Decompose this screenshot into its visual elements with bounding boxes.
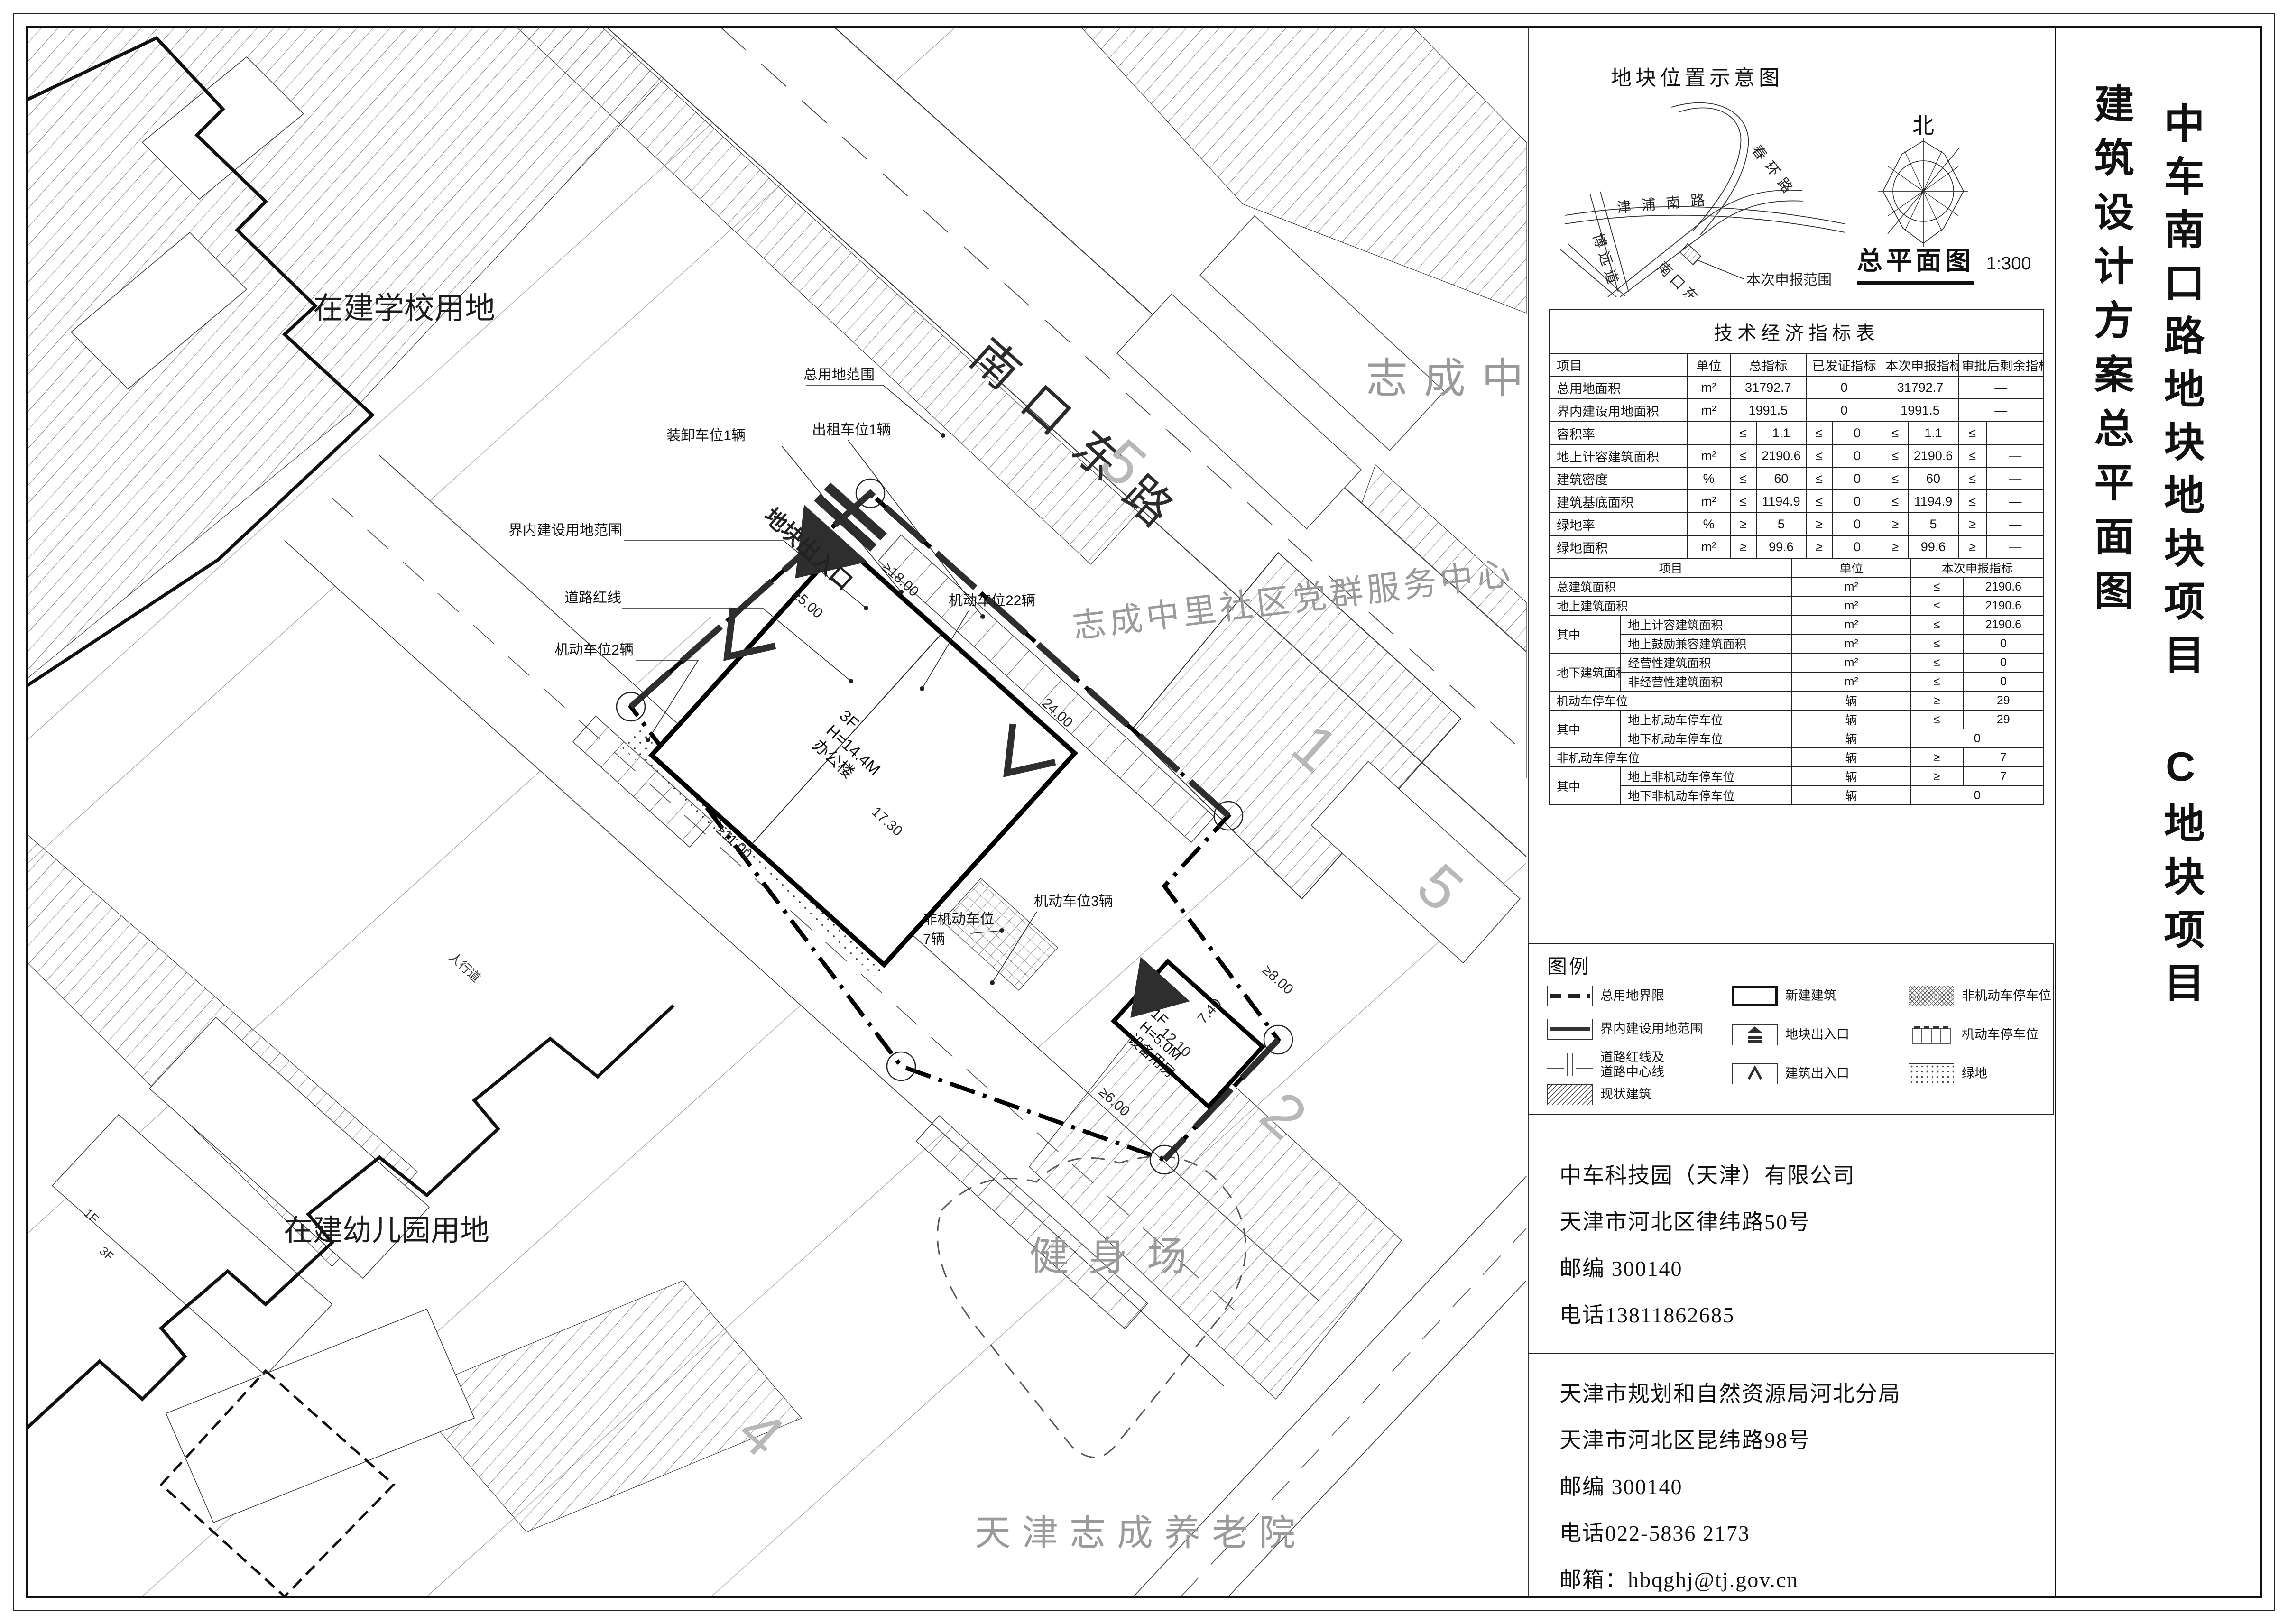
inner-scope-icon <box>1547 1019 1593 1040</box>
table-cell: 非机动车停车位 <box>1550 748 1792 767</box>
sketch-scope-label: 本次申报范围 <box>1746 272 1832 288</box>
kindergarten-area-label: 在建幼儿园用地 <box>284 1214 489 1247</box>
legend-item: 总用地界限 <box>1547 986 1664 1006</box>
authority-email: 邮箱：hbqghj@tj.gov.cn <box>1559 1557 2054 1603</box>
table-cell: 1194.9 <box>1756 490 1806 513</box>
non-motor-label-2: 7辆 <box>923 932 945 947</box>
table-cell: 2190.6 <box>1908 444 1958 467</box>
table-cell: 项目 <box>1550 558 1792 577</box>
indicator-table: 技术经济指标表 项目单位总指标已发证指标本次申报指标审批后剩余指标总用地面积m²… <box>1549 309 2044 805</box>
table-cell: 0 <box>1832 467 1882 490</box>
table-cell: ≥ <box>1882 513 1908 535</box>
table-cell: 地上非机动车停车位 <box>1621 767 1792 786</box>
table-cell: 经营性建筑面积 <box>1621 653 1792 672</box>
table-cell: ≤ <box>1806 467 1832 490</box>
legend-item: 绿地 <box>1909 1063 1987 1084</box>
table-cell: 0 <box>1806 399 1882 422</box>
table-cell: 1.1 <box>1908 422 1958 444</box>
table-cell: 7 <box>1963 748 2044 767</box>
table-cell: 1194.9 <box>1908 490 1958 513</box>
table-cell: 容积率 <box>1550 422 1688 444</box>
table-cell: — <box>1688 422 1730 444</box>
table-cell: 99.6 <box>1908 535 1958 558</box>
legend-item-label: 现状建筑 <box>1600 1087 1651 1102</box>
table-cell: m² <box>1792 634 1910 653</box>
table-cell: 地下机动车停车位 <box>1621 729 1792 748</box>
table-cell: 2190.6 <box>1963 577 2044 596</box>
table-cell: 绿地率 <box>1550 513 1688 535</box>
table-cell: 0 <box>1832 490 1882 513</box>
table-cell: 其中 <box>1550 710 1621 748</box>
table-cell: 单位 <box>1792 558 1910 577</box>
sketch-road-label: 博远道 <box>1589 231 1622 290</box>
non-motor-label-1: 非机动车位 <box>923 912 994 927</box>
table-cell: 总指标 <box>1730 353 1806 376</box>
table-cell: ≤ <box>1806 422 1832 444</box>
table-cell: ≤ <box>1806 444 1832 467</box>
table-cell: 建筑密度 <box>1550 467 1688 490</box>
table-cell: 0 <box>1806 376 1882 399</box>
table-cell: 2190.6 <box>1963 596 2044 615</box>
table-cell: 单位 <box>1688 353 1730 376</box>
table-cell: ≤ <box>1882 490 1908 513</box>
table-cell: 本次申报指标 <box>1882 353 1958 376</box>
table-cell: 辆 <box>1792 767 1910 786</box>
legend-title: 图例 <box>1547 950 1591 979</box>
table-cell: — <box>1987 422 2044 444</box>
table-cell: — <box>1958 376 2044 399</box>
table-cell: ≤ <box>1882 467 1908 490</box>
loading-1-label: 装卸车位1辆 <box>666 428 746 443</box>
table-cell: ≤ <box>1730 490 1756 513</box>
sketch-road-label: 春环路 <box>1748 142 1799 201</box>
table-cell: m² <box>1792 653 1910 672</box>
sidewalk-label: 人行道 <box>446 950 483 985</box>
table-cell: m² <box>1688 399 1730 422</box>
legend-item-label: 绿地 <box>1962 1066 1987 1081</box>
table-cell: 辆 <box>1792 748 1910 767</box>
table-cell: ≤ <box>1882 422 1908 444</box>
table-cell: ≥ <box>1882 535 1908 558</box>
legend-item: 现状建筑 <box>1547 1084 1651 1105</box>
table-cell: — <box>1987 490 2044 513</box>
table-cell: m² <box>1688 535 1730 558</box>
table-cell: 本次申报指标 <box>1910 558 2044 577</box>
table-cell: 31792.7 <box>1730 376 1806 399</box>
green-space-icon <box>1909 1063 1954 1084</box>
table-cell: 总用地面积 <box>1550 376 1688 399</box>
table-cell: 辆 <box>1792 710 1910 729</box>
table-cell: ≤ <box>1730 444 1756 467</box>
table-cell: 31792.7 <box>1882 376 1958 399</box>
floor-tag: 3F <box>97 1244 117 1264</box>
table-cell: 地下建筑面积 <box>1550 653 1621 691</box>
table-cell: ≤ <box>1910 615 1963 634</box>
table-cell: — <box>1987 513 2044 535</box>
table-cell: ≥ <box>1910 691 1963 710</box>
legend-item-label: 机动车停车位 <box>1962 1027 2039 1042</box>
table-cell: ≤ <box>1958 467 1987 490</box>
table-cell: ≥ <box>1806 513 1832 535</box>
table-cell: 2190.6 <box>1963 615 2044 634</box>
table-cell: ≥ <box>1958 513 1987 535</box>
total-site-scope-label: 总用地范围 <box>803 367 875 383</box>
table-cell: 99.6 <box>1756 535 1806 558</box>
table-cell: 0 <box>1832 444 1882 467</box>
legend: 图例 总用地界限 界内建设用地范围 道路红线及道路中心线 现状建筑 新建建筑 <box>1528 943 2054 1115</box>
table-cell: 地上机动车停车位 <box>1621 710 1792 729</box>
plan-caption: 总平面图 1:300 <box>1857 240 2031 285</box>
nursing-home-label: 天津志成养老院 <box>975 1513 1307 1553</box>
table-cell: 7 <box>1963 767 2044 786</box>
table-cell: 0 <box>1963 653 2044 672</box>
fitness-label: 健身场 <box>1029 1234 1206 1279</box>
non-motor-parking-icon <box>1909 986 1954 1006</box>
table-cell: ≤ <box>1910 672 1963 691</box>
table-cell: — <box>1958 399 2044 422</box>
building-entry-icon <box>1732 1063 1778 1084</box>
sheet-title-drawing: 建筑设计方案总平面图 <box>2074 83 2140 624</box>
taxi-1-label: 出租车位1辆 <box>812 422 891 438</box>
table-cell: 60 <box>1908 467 1958 490</box>
table-cell: — <box>1987 444 2044 467</box>
table-cell: 界内建设用地面积 <box>1550 399 1688 422</box>
applicant-phone: 电话13811862685 <box>1559 1292 2054 1338</box>
table-cell: ≥ <box>1910 748 1963 767</box>
existing-building-icon <box>1547 1084 1593 1105</box>
plan-scale: 1:300 <box>1986 254 2031 274</box>
north-label: 北 <box>1912 113 1934 138</box>
authority-postcode: 邮编 300140 <box>1559 1464 2054 1510</box>
indicator-table-title: 技术经济指标表 <box>1549 309 2044 353</box>
table-cell: 2190.6 <box>1756 444 1806 467</box>
table-cell: ≤ <box>1910 653 1963 672</box>
table-cell: 审批后剩余指标 <box>1958 353 2044 376</box>
table-cell: 5 <box>1756 513 1806 535</box>
table-cell: ≤ <box>1910 577 1963 596</box>
legend-item: 机动车停车位 <box>1909 1024 2039 1045</box>
table-cell: ≤ <box>1910 634 1963 653</box>
table-cell: 1991.5 <box>1882 399 1958 422</box>
legend-item: 界内建设用地范围 <box>1547 1019 1703 1040</box>
table-cell: 0 <box>1963 672 2044 691</box>
table-cell: 0 <box>1963 634 2044 653</box>
applicant-address: 天津市河北区律纬路50号 <box>1559 1199 2054 1246</box>
table-cell: ≤ <box>1910 710 1963 729</box>
legend-item-label: 建筑出入口 <box>1785 1066 1849 1081</box>
table-cell: 29 <box>1963 691 2044 710</box>
table-cell: 0 <box>1832 422 1882 444</box>
table-cell: m² <box>1792 596 1910 615</box>
location-sketch-title: 地块位置示意图 <box>1611 61 1783 91</box>
drawing-sheet: 在建学校用地 南口东路 志成中里 志成中里社区党群服务中心 健身场 天津志成养老… <box>0 0 2288 1624</box>
table-cell: m² <box>1792 672 1910 691</box>
legend-item: 道路红线及道路中心线 <box>1547 1050 1671 1080</box>
motor-parking-icon <box>1909 1024 1954 1045</box>
table-cell: ≤ <box>1958 422 1987 444</box>
table-cell: ≤ <box>1958 444 1987 467</box>
table-cell: 总建筑面积 <box>1550 577 1792 596</box>
table-cell: 0 <box>1910 729 2044 748</box>
table-cell: 地上鼓励兼容建筑面积 <box>1621 634 1792 653</box>
legend-item-label: 界内建设用地范围 <box>1600 1022 1703 1036</box>
sketch-road-label: 津浦南路 <box>1616 192 1716 216</box>
legend-item-label: 道路红线及道路中心线 <box>1600 1050 1671 1080</box>
legend-item: 非机动车停车位 <box>1909 986 2051 1006</box>
legend-item-label: 新建建筑 <box>1785 988 1836 1003</box>
table-cell: ≥ <box>1806 535 1832 558</box>
table-cell: 0 <box>1910 786 2044 805</box>
table-cell: ≤ <box>1806 490 1832 513</box>
authority-name: 天津市规划和自然资源局河北分局 <box>1559 1371 2054 1417</box>
table-cell: ≤ <box>1730 422 1756 444</box>
table-cell: m² <box>1688 490 1730 513</box>
new-building-icon <box>1732 986 1778 1006</box>
legend-item-label: 总用地界限 <box>1600 988 1664 1003</box>
table-cell: m² <box>1792 577 1910 596</box>
parking-2-label: 机动车位2辆 <box>554 642 634 658</box>
applicant-postcode: 邮编 300140 <box>1559 1246 2054 1292</box>
school-area-label: 在建学校用地 <box>313 291 495 325</box>
legend-item-label: 地块出入口 <box>1785 1027 1849 1042</box>
table-cell: 其中 <box>1550 767 1621 805</box>
table-cell: 非经营性建筑面积 <box>1621 672 1792 691</box>
table-cell: — <box>1987 467 2044 490</box>
authority-phone: 电话022-5836 2173 <box>1559 1510 2054 1557</box>
table-cell: 0 <box>1832 513 1882 535</box>
table-cell: 60 <box>1756 467 1806 490</box>
table-cell: 地上计容建筑面积 <box>1621 615 1792 634</box>
table-cell: 地上计容建筑面积 <box>1550 444 1688 467</box>
road-lines-icon <box>1547 1053 1593 1076</box>
parking-22-label: 机动车位22辆 <box>949 593 1035 609</box>
authority-address: 天津市河北区昆纬路98号 <box>1559 1417 2054 1464</box>
table-cell: m² <box>1792 615 1910 634</box>
table-cell: — <box>1987 535 2044 558</box>
table-cell: 地下非机动车停车位 <box>1621 786 1792 805</box>
applicant-name: 中车科技园（天津）有限公司 <box>1559 1153 2054 1199</box>
table-cell: 0 <box>1832 535 1882 558</box>
table-cell: ≥ <box>1910 767 1963 786</box>
table-cell: 机动车停车位 <box>1550 691 1792 710</box>
indicator-table-part1: 项目单位总指标已发证指标本次申报指标审批后剩余指标总用地面积m²31792.70… <box>1549 353 2044 559</box>
dim-8: ≥8.00 <box>1259 962 1296 998</box>
inner-scope-label: 界内建设用地范围 <box>508 523 622 538</box>
table-cell: ≤ <box>1958 490 1987 513</box>
table-cell: 29 <box>1963 710 2044 729</box>
table-cell: m² <box>1688 444 1730 467</box>
table-cell: ≥ <box>1730 535 1756 558</box>
table-cell: 辆 <box>1792 729 1910 748</box>
table-cell: ≤ <box>1730 467 1756 490</box>
north-compass: 北 <box>1869 111 1978 251</box>
site-boundary-icon <box>1547 986 1593 1006</box>
table-cell: 已发证指标 <box>1806 353 1882 376</box>
table-cell: m² <box>1688 376 1730 399</box>
applicant-info: 中车科技园（天津）有限公司 天津市河北区律纬路50号 邮编 300140 电话1… <box>1528 1135 2054 1353</box>
table-cell: 辆 <box>1792 786 1910 805</box>
table-cell: ≤ <box>1882 444 1908 467</box>
table-cell: 项目 <box>1550 353 1688 376</box>
table-cell: 建筑基底面积 <box>1550 490 1688 513</box>
legend-item-label: 非机动车停车位 <box>1962 988 2051 1003</box>
table-cell: 辆 <box>1792 691 1910 710</box>
legend-item: 新建建筑 <box>1732 986 1836 1006</box>
parking-3-label: 机动车位3辆 <box>1034 894 1113 909</box>
plan-name: 总平面图 <box>1857 240 1974 285</box>
table-cell: % <box>1688 467 1730 490</box>
indicator-table-part2: 项目单位本次申报指标总建筑面积m²≤2190.6地上建筑面积m²≤2190.6其… <box>1549 558 2044 805</box>
title-strip-divider <box>2055 28 2056 1596</box>
sheet-title-project: 中车南口路地块地块项目 C地块项目 <box>2139 102 2210 1015</box>
road-red-line-label: 道路红线 <box>564 590 621 606</box>
table-cell: 绿地面积 <box>1550 535 1688 558</box>
site-entry-icon <box>1732 1024 1778 1045</box>
table-cell: 1991.5 <box>1730 399 1806 422</box>
table-cell: 5 <box>1908 513 1958 535</box>
table-cell: 其中 <box>1550 615 1621 653</box>
table-cell: 地上建筑面积 <box>1550 596 1792 615</box>
legend-item: 建筑出入口 <box>1732 1063 1849 1084</box>
authority-info: 天津市规划和自然资源局河北分局 天津市河北区昆纬路98号 邮编 300140 电… <box>1528 1353 2054 1596</box>
table-cell: ≥ <box>1958 535 1987 558</box>
table-cell: ≥ <box>1730 513 1756 535</box>
table-cell: % <box>1688 513 1730 535</box>
legend-item: 地块出入口 <box>1732 1024 1849 1045</box>
table-cell: ≤ <box>1910 596 1963 615</box>
sketch-road-label: 南口东路 <box>1654 259 1716 297</box>
table-cell: 1.1 <box>1756 422 1806 444</box>
